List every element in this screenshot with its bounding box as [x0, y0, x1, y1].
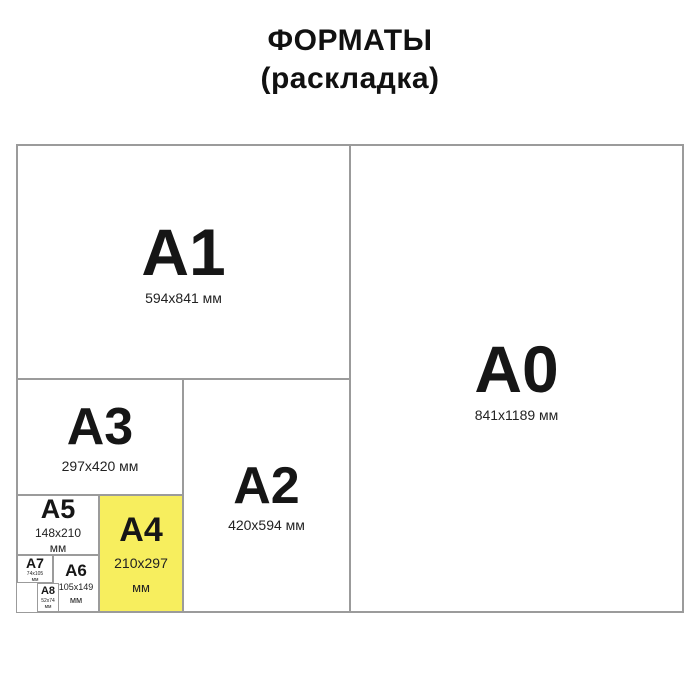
format-a6-label: A6 — [65, 562, 87, 579]
format-region-a5: A5 148x210 мм — [17, 495, 99, 555]
format-region-a3: A3 297x420 мм — [17, 379, 183, 495]
format-a5-label: A5 — [41, 496, 76, 523]
format-region-a8: A8 52x74 мм — [37, 583, 59, 612]
format-region-a4-highlighted: A4 210x297 мм — [99, 495, 183, 612]
formats-layout-diagram: A1 594x841 мм A0 841x1189 мм A3 297x420 … — [0, 0, 700, 700]
format-a2-label: A2 — [233, 460, 299, 512]
format-region-a2: A2 420x594 мм — [183, 379, 350, 612]
format-a8-label: A8 — [41, 586, 55, 597]
format-a4-label: A4 — [119, 513, 162, 547]
format-a4-dimensions: 210x297 — [114, 556, 168, 570]
format-a3-label: A3 — [67, 401, 133, 453]
format-a4-dimensions-unit: мм — [132, 581, 150, 594]
format-region-a1: A1 594x841 мм — [17, 145, 350, 379]
format-a0-label: A0 — [474, 336, 558, 402]
format-a7-label: A7 — [26, 556, 44, 570]
format-a5-dimensions: 148x210 — [35, 527, 81, 539]
format-region-a6: A6 105x149 мм — [53, 555, 99, 612]
format-a0-dimensions: 841x1189 мм — [475, 408, 559, 422]
format-a6-dimensions: 105x149 — [59, 583, 94, 592]
format-a5-dimensions-unit: мм — [50, 542, 67, 554]
format-a1-label: A1 — [141, 219, 225, 285]
format-a7-dimensions-unit: мм — [32, 578, 39, 583]
format-a7-dimensions: 74x105 — [27, 572, 43, 577]
format-a6-dimensions-unit: мм — [70, 596, 82, 605]
format-a3-dimensions: 297x420 мм — [62, 459, 139, 473]
format-a8-dimensions-unit: мм — [45, 605, 52, 610]
format-a1-dimensions: 594x841 мм — [145, 291, 222, 305]
format-region-a0: A0 841x1189 мм — [350, 145, 683, 612]
format-a2-dimensions: 420x594 мм — [228, 518, 305, 532]
format-region-a7: A7 74x105 мм — [17, 555, 53, 583]
format-a8-dimensions: 52x74 — [41, 599, 55, 604]
paper-formats-page: ФОРМАТЫ (раскладка) A1 594x841 мм A0 841… — [0, 0, 700, 700]
